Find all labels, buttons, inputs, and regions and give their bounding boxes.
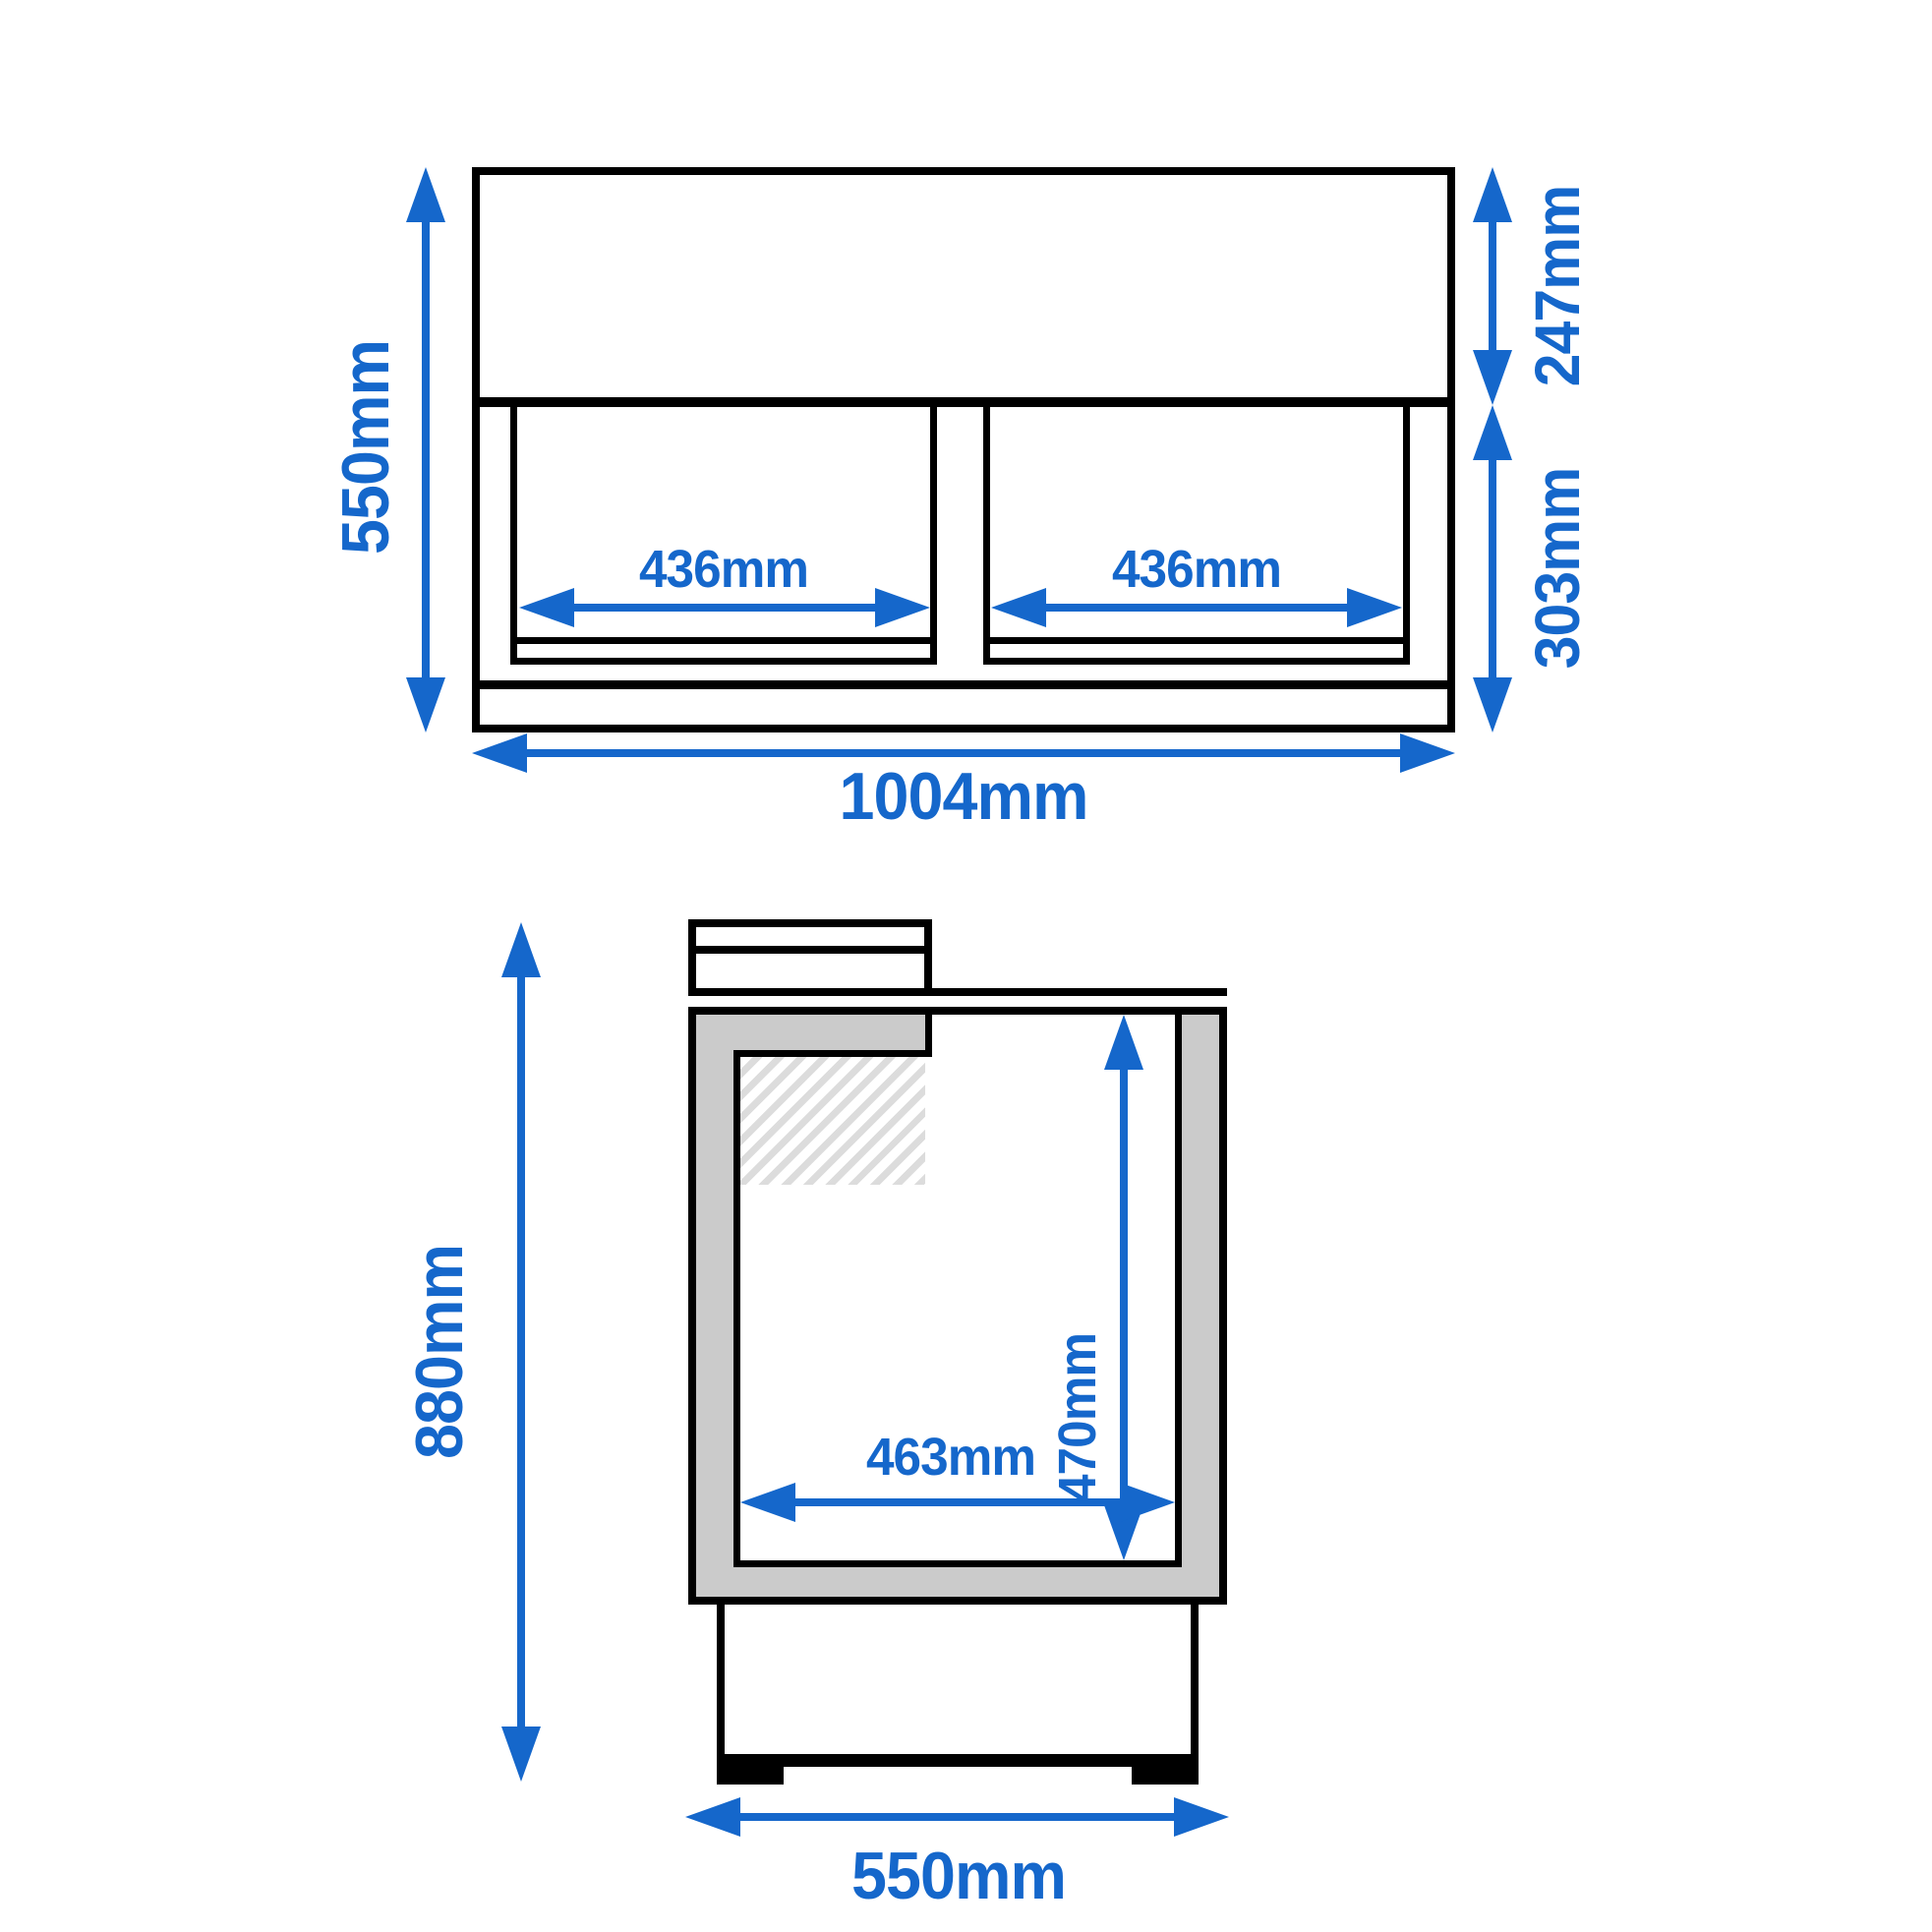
front-left-opening-rail	[517, 637, 930, 644]
arrow-right-icon	[875, 588, 930, 627]
arrow-right-icon	[1347, 588, 1402, 627]
side-liner-right	[1175, 1015, 1182, 1567]
side-pedestal	[717, 1605, 1199, 1767]
side-depth-dim-arrow	[685, 1797, 1229, 1837]
front-bottom-section-dim-label: 303mm	[1521, 468, 1594, 670]
front-left-opening-dim-label: 436mm	[639, 539, 808, 600]
front-top-section-dim-label: 247mm	[1521, 186, 1594, 387]
side-inner-width-dim-arrow	[740, 1483, 1175, 1522]
arrow-down-icon	[1473, 350, 1512, 405]
arrow-down-icon	[406, 677, 445, 732]
drawing-canvas: 550mm 247mm 303mm 436mm 436mm	[0, 0, 1932, 1932]
side-top-box	[688, 919, 932, 996]
arrow-down-icon	[501, 1727, 541, 1782]
side-foot-left	[717, 1767, 784, 1785]
side-inner-width-dim-label: 463mm	[866, 1427, 1035, 1488]
side-liner-ceiling-left	[733, 1050, 932, 1057]
side-depth-dim-label: 550mm	[851, 1838, 1066, 1914]
front-height-dim-arrow	[406, 167, 445, 732]
front-plinth-line	[480, 680, 1447, 689]
side-foot-right	[1132, 1767, 1199, 1785]
side-insulation-right-wall	[1182, 1015, 1219, 1597]
front-height-dim-label: 550mm	[327, 340, 404, 555]
side-liner-step	[925, 1015, 932, 1057]
front-bottom-section-dim-arrow	[1473, 405, 1512, 732]
arrow-right-icon	[1120, 1483, 1175, 1522]
side-insulation-bottom-band	[696, 1567, 1219, 1597]
front-width-dim-label: 1004mm	[840, 758, 1088, 835]
side-insulation-top-band	[696, 1015, 925, 1050]
arrow-down-icon	[1473, 677, 1512, 732]
side-height-dim-label: 880mm	[401, 1245, 478, 1459]
front-right-opening-dim-label: 436mm	[1112, 539, 1281, 600]
side-evaporator-hatch	[740, 1057, 925, 1185]
arrow-right-icon	[1400, 733, 1455, 773]
side-liner-floor	[733, 1560, 1182, 1567]
front-divider-line	[480, 397, 1447, 407]
front-top-section-dim-arrow	[1473, 167, 1512, 405]
side-height-dim-arrow	[501, 922, 541, 1782]
side-inner-height-dim-arrow	[1104, 1015, 1143, 1560]
front-right-opening-rail	[990, 637, 1403, 644]
side-inner-height-dim-label: 470mm	[1047, 1333, 1108, 1502]
side-top-box-divider	[696, 946, 924, 954]
side-worktop	[688, 988, 1227, 1015]
arrow-right-icon	[1174, 1797, 1229, 1837]
side-insulation-left-wall	[696, 1015, 733, 1597]
side-liner-left	[733, 1050, 740, 1567]
